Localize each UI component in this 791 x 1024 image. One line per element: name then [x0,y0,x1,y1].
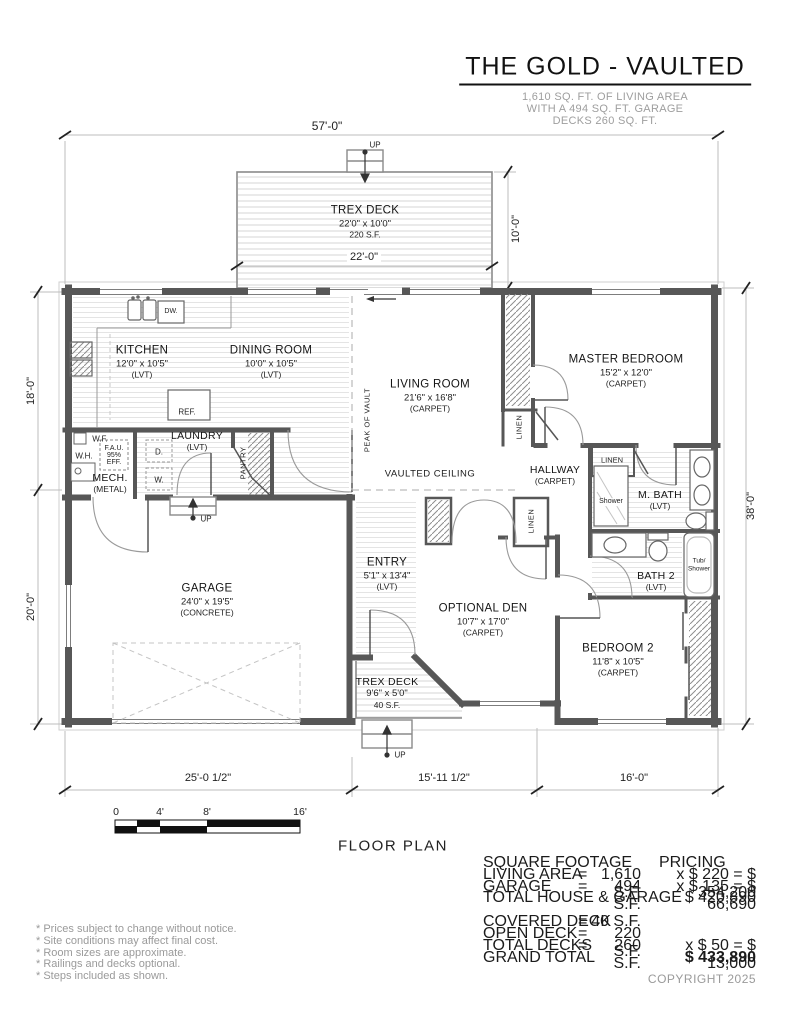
dim-bottom-middle: 15'-11 1/2" [415,772,473,784]
room-label-optional-den: OPTIONAL DEN10'7" x 17'0"(CARPET) [439,603,528,638]
copyright-label: COPYRIGHT 2025 [648,972,756,986]
scale-tick: 8' [203,806,211,818]
shower-label: Shower [599,498,623,506]
table-row: GARAGE=494 S.F.x $ 135 = $ 66,690 [483,878,778,889]
washer-label: W. [154,476,163,485]
vaulted-ceiling-label: VAULTED CEILING [385,469,476,480]
water-filter-label: W.F. [92,435,108,444]
table-row: COVERED DECK=40 S.F. [483,913,778,924]
dishwasher-label: DW. [164,308,177,316]
water-heater-label: W.H. [75,452,92,461]
dim-bottom-left: 25'-0 1/2" [182,772,234,784]
table-row: TOTAL DECKS=260 S.F.x $ 50 = $ 13,000 [483,937,778,948]
dim-left-upper: 18'-0" [25,377,37,405]
scale-tick: 16' [293,806,307,818]
room-label-mech: MECH.(METAL) [92,472,127,494]
tub-shower-label: Tub/ [693,558,706,565]
page-title: THE GOLD - VAULTED [459,53,751,86]
table-row-grand-total: GRAND TOTAL$ 433,890 [483,949,778,960]
room-label-kitchen: KITCHEN12'0" x 10'5"(LVT) [116,345,169,380]
room-label-bedroom-2: BEDROOM 211'8" x 10'5"(CARPET) [582,643,654,678]
subtitle-line: WITH A 494 SQ. FT. GARAGE [527,103,684,115]
subtitle-line: 1,610 SQ. FT. OF LIVING AREA [522,91,688,103]
disclaimer-notes: * Prices subject to change without notic… [36,924,237,983]
room-label-hallway: HALLWAY(CARPET) [530,464,580,486]
linen-label-hall: LINEN [527,509,536,534]
room-label-master-bedroom: MASTER BEDROOM15'2" x 12'0"(CARPET) [569,354,684,389]
up-label-garage: UP [200,515,211,524]
scale-tick: 4' [156,806,164,818]
room-label-garage: GARAGE24'0" x 19'5"(CONCRETE) [180,583,233,618]
dim-deck-depth: 10'-0" [510,215,522,243]
tub-shower-label: Shower [688,566,710,573]
dim-overall-width: 57'-0" [309,119,346,133]
floor-plan-label: FLOOR PLAN [338,838,448,855]
table-row: TOTAL HOUSE & GARAGE$ 420,890 [483,889,778,900]
dim-right-height: 38'-0" [745,492,757,520]
scale-tick: 0 [113,806,119,818]
room-label-trex-deck-low: TREX DECK9'6" x 5'0"40 S.F. [356,676,419,710]
dryer-label: D. [155,448,163,457]
room-label-trex-deck-top: TREX DECK22'0" x 10'0"220 S.F. [331,205,400,240]
room-label-living-room: LIVING ROOM21'6" x 16'8"(CARPET) [390,379,470,414]
up-label-entry-deck: UP [394,751,405,760]
linen-label-mbath: LINEN [601,456,623,465]
room-label-entry: ENTRY5'1" x 13'4"(LVT) [364,557,411,592]
floor-plan-page: { "header": { "title": "THE GOLD - VAULT… [0,0,791,1024]
peak-of-vault-label: PEAK OF VAULT [363,388,372,452]
sliding-door-arrow [366,296,374,302]
table-header-row: SQUARE FOOTAGE PRICING [483,854,778,865]
dim-deck-width: 22'-0" [347,251,381,263]
fau-label: EFF. [107,459,121,467]
room-label-laundry: LAUNDRY(LVT) [171,430,223,452]
note-line: * Site conditions may affect final cost. [36,936,237,948]
room-label-dining-room: DINING ROOM10'0" x 10'5"(LVT) [230,345,313,380]
refrigerator-label: REF. [178,408,195,417]
subtitle-line: DECKS 260 SQ. FT. [553,115,658,127]
scale-bar [115,820,300,833]
note-line: * Steps included as shown. [36,971,237,983]
table-row: LIVING AREA=1,610 S.F.x $ 220 = $ 354,20… [483,866,778,877]
up-label-deck: UP [369,141,380,150]
dim-left-lower: 20'-0" [25,593,37,621]
pantry-label: PANTRY [239,447,248,480]
dim-bottom-right: 16'-0" [617,772,651,784]
garage-parking-dashed [113,643,300,723]
table-row: OPEN DECK=220 S.F. [483,925,778,936]
room-label-m-bath: M. BATH(LVT) [638,489,682,511]
linen-label-master: LINEN [515,415,524,440]
room-label-bath-2: BATH 2(LVT) [637,570,675,592]
